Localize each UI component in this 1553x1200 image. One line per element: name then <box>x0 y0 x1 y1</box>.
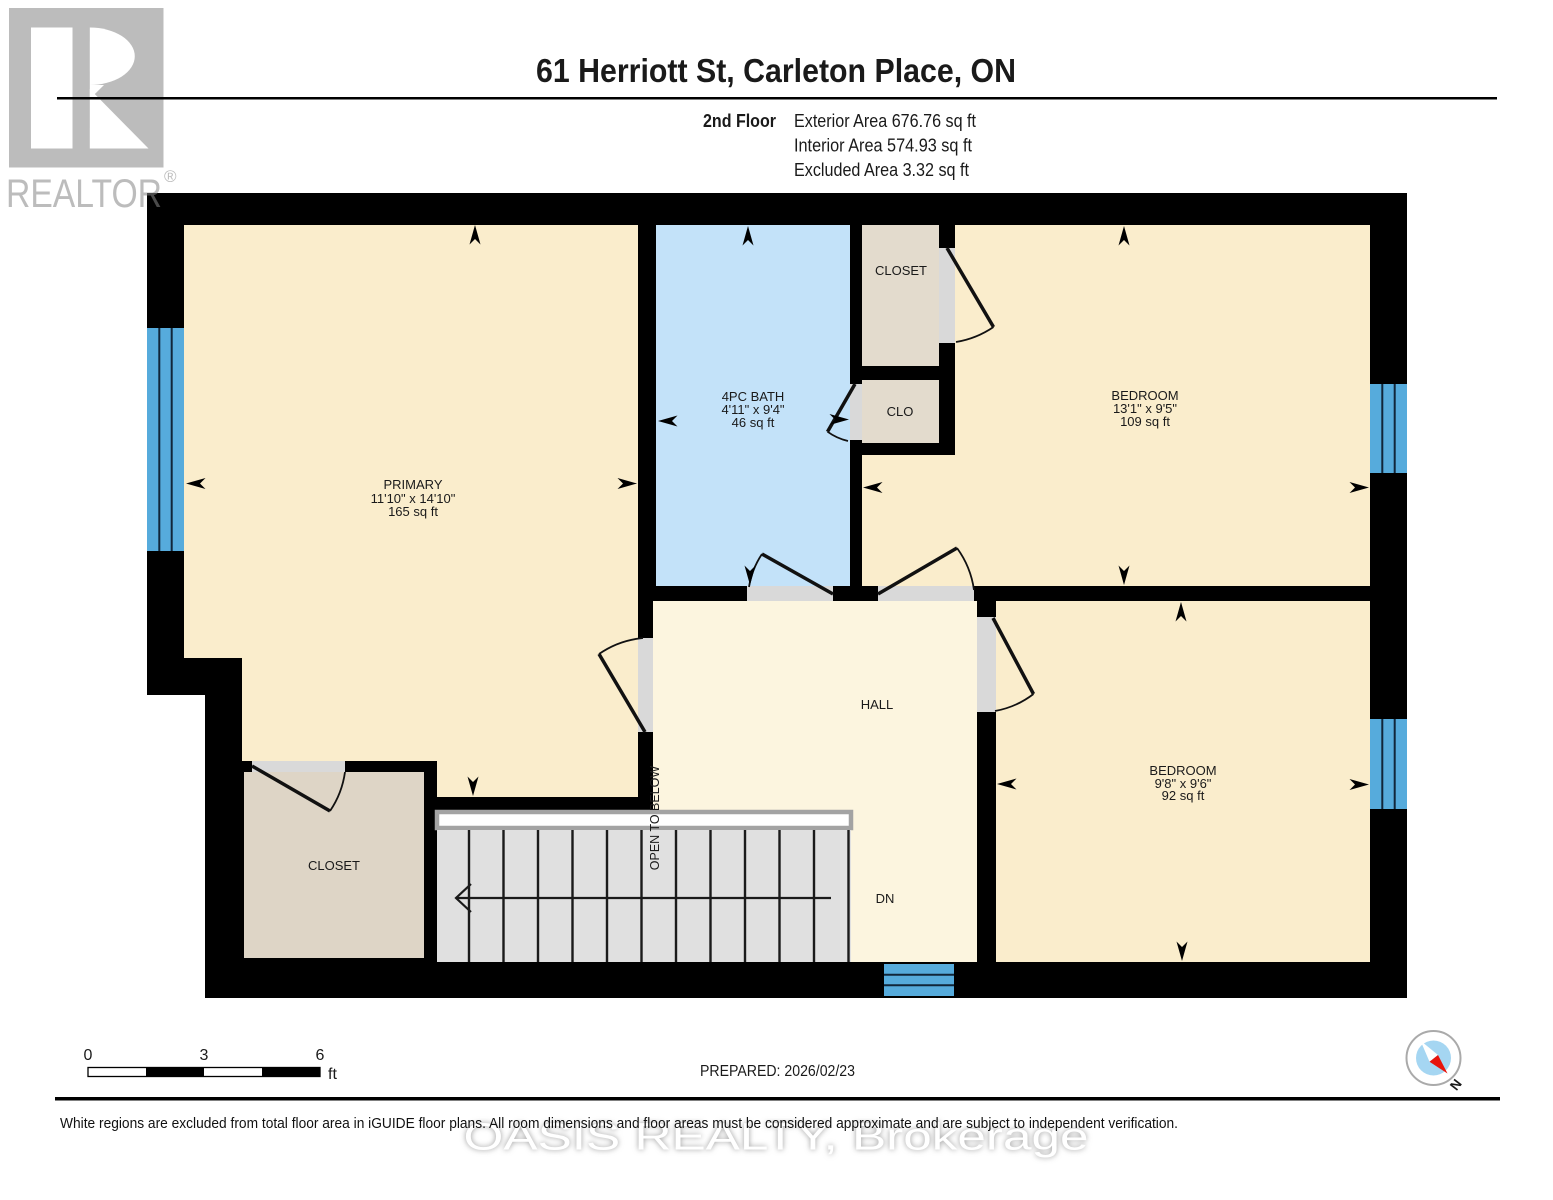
svg-text:DN: DN <box>876 891 895 906</box>
svg-text:3: 3 <box>200 1047 209 1064</box>
svg-text:6: 6 <box>316 1047 325 1064</box>
svg-text:ft: ft <box>328 1066 337 1083</box>
svg-text:46 sq ft: 46 sq ft <box>732 415 775 430</box>
svg-text:2nd Floor: 2nd Floor <box>703 111 776 131</box>
svg-text:Exterior Area 676.76 sq ft: Exterior Area 676.76 sq ft <box>794 111 976 131</box>
svg-text:Interior Area 574.93 sq ft: Interior Area 574.93 sq ft <box>794 136 972 156</box>
svg-text:OPEN TO BELOW: OPEN TO BELOW <box>648 766 662 871</box>
svg-text:PRIMARY: PRIMARY <box>384 477 443 492</box>
svg-text:0: 0 <box>84 1047 93 1064</box>
svg-text:CLO: CLO <box>887 404 914 419</box>
svg-text:HALL: HALL <box>861 697 894 712</box>
svg-text:®: ® <box>164 167 177 186</box>
svg-text:PREPARED: 2026/02/23: PREPARED: 2026/02/23 <box>700 1063 855 1080</box>
svg-text:61 Herriott St, Carleton Place: 61 Herriott St, Carleton Place, ON <box>536 52 1016 89</box>
svg-text:109 sq ft: 109 sq ft <box>1120 414 1170 429</box>
svg-text:Excluded Area 3.32 sq ft: Excluded Area 3.32 sq ft <box>794 160 969 180</box>
svg-text:REALTOR: REALTOR <box>6 172 162 216</box>
svg-text:92 sq ft: 92 sq ft <box>1162 788 1205 803</box>
svg-text:165 sq ft: 165 sq ft <box>388 504 438 519</box>
svg-text:CLOSET: CLOSET <box>308 858 360 873</box>
svg-text:White regions are excluded fro: White regions are excluded from total fl… <box>60 1116 1178 1132</box>
svg-text:CLOSET: CLOSET <box>875 263 927 278</box>
